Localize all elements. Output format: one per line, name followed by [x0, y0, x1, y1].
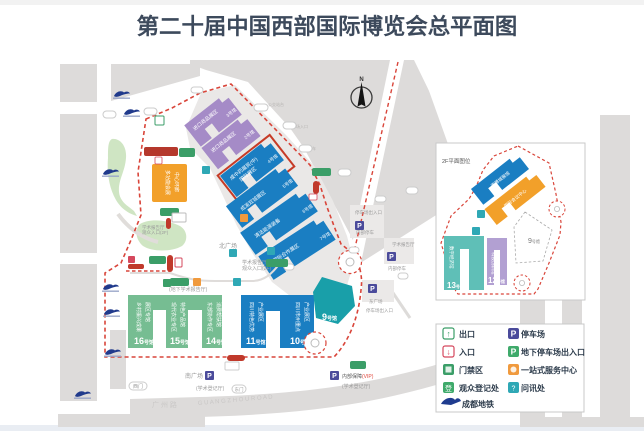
svg-text:门禁区: 门禁区	[459, 365, 483, 375]
svg-text:↓: ↓	[447, 348, 451, 357]
svg-text:南广场: 南广场	[185, 372, 203, 380]
svg-text:内部停车: 内部停车	[356, 229, 374, 236]
svg-text:(学术登记厅): (学术登记厅)	[342, 383, 371, 390]
svg-text:观众登记处: 观众登记处	[459, 383, 500, 393]
svg-text:东广场: 东广场	[369, 298, 383, 305]
svg-text:内部停车: 内部停车	[388, 265, 406, 272]
svg-text:P: P	[511, 347, 517, 357]
svg-text:2F平面图位: 2F平面图位	[442, 157, 471, 165]
svg-text:P: P	[389, 254, 394, 261]
svg-text:?: ?	[512, 386, 516, 393]
svg-text:北广场: 北广场	[219, 242, 237, 250]
svg-text:P: P	[332, 373, 337, 380]
svg-text:停车场出入口: 停车场出入口	[355, 209, 382, 216]
svg-text:特色产品馆: 特色产品馆	[179, 302, 186, 327]
svg-text:P: P	[207, 373, 212, 380]
svg-text:一站式服务中心: 一站式服务中心	[521, 365, 577, 375]
svg-text:多功能会展: 多功能会展	[164, 170, 171, 195]
svg-text:9号馆: 9号馆	[528, 238, 540, 245]
svg-text:内部保障(VIP): 内部保障(VIP)	[342, 373, 374, 380]
svg-text:中心环廊: 中心环廊	[173, 172, 180, 192]
svg-text:消费帮扶馆: 消费帮扶馆	[215, 302, 222, 327]
svg-text:停车场出入口: 停车场出入口	[366, 307, 393, 314]
svg-text:登: 登	[445, 384, 452, 393]
svg-text:展区专馆: 展区专馆	[144, 302, 151, 322]
svg-text:四川市州重点: 四川市州重点	[294, 302, 301, 332]
svg-text:西门: 西门	[133, 383, 143, 390]
svg-text:四川特色优势: 四川特色优势	[248, 302, 255, 332]
svg-text:停车场: 停车场	[521, 329, 545, 339]
svg-text:观众入口(2F): 观众入口(2F)	[242, 266, 272, 272]
svg-text:广 州 路: 广 州 路	[152, 400, 177, 409]
svg-text:(地下学术报告厅): (地下学术报告厅)	[169, 286, 208, 293]
svg-text:产业展区: 产业展区	[257, 302, 264, 322]
svg-text:产业展区: 产业展区	[303, 302, 310, 322]
svg-text:东门: 东门	[235, 386, 244, 393]
svg-text:P: P	[511, 329, 517, 339]
svg-text:学术报告厅: 学术报告厅	[242, 259, 267, 266]
svg-text:问讯处: 问讯处	[521, 383, 546, 393]
svg-text:公交站台: 公交站台	[268, 101, 284, 107]
svg-text:学术报告厅: 学术报告厅	[392, 241, 415, 248]
svg-text:科技创新馆: 科技创新馆	[490, 252, 497, 275]
svg-text:P: P	[357, 223, 362, 230]
svg-text:入口: 入口	[458, 348, 475, 357]
svg-text:第二十届中国西部国际博览会总平面图: 第二十届中国西部国际博览会总平面图	[137, 13, 518, 39]
svg-text:P: P	[370, 286, 375, 293]
svg-text:地下停车场出入口: 地下停车场出入口	[521, 347, 585, 357]
svg-text:出口: 出口	[459, 329, 475, 339]
svg-text:现代农业专区: 现代农业专区	[170, 302, 177, 332]
svg-text:成都地铁: 成都地铁	[462, 399, 494, 409]
svg-text:↑: ↑	[447, 330, 451, 339]
svg-text:东部协作专区: 东部协作专区	[206, 302, 213, 332]
svg-text:数字经济馆: 数字经济馆	[448, 246, 455, 269]
svg-text:(学术登记厅): (学术登记厅)	[196, 385, 225, 392]
svg-text:乡村振兴成果: 乡村振兴成果	[135, 302, 142, 332]
